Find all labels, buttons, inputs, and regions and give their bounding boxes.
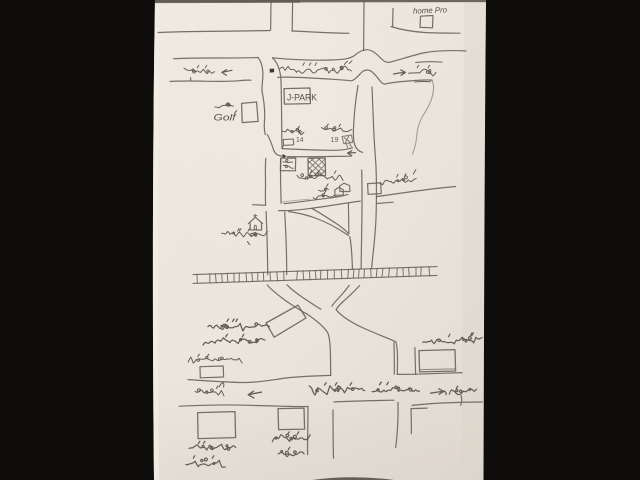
svg-text:home Pro: home Pro [413, 5, 448, 15]
svg-text:19: 19 [331, 135, 339, 144]
svg-text:14: 14 [296, 135, 304, 144]
svg-text:J-PARK: J-PARK [287, 93, 317, 103]
svg-text:Golf: Golf [214, 113, 238, 123]
